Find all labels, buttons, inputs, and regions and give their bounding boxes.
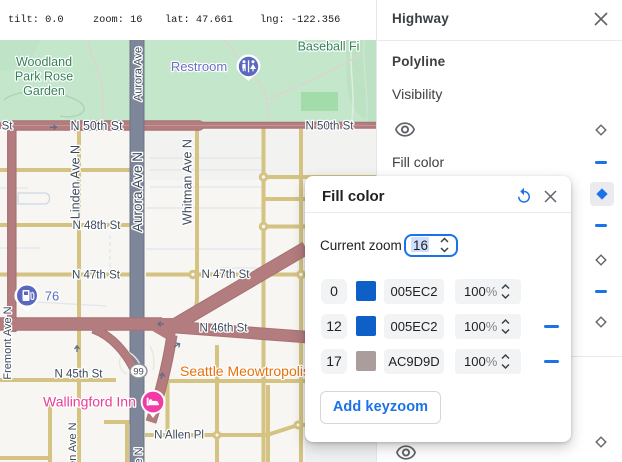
- svg-text:N 50th St: N 50th St: [306, 121, 355, 133]
- svg-text:Whitman Ave N: Whitman Ave N: [181, 139, 195, 225]
- svg-text:N 48th St: N 48th St: [73, 220, 122, 232]
- svg-text:Aurora Ave N: Aurora Ave N: [133, 447, 145, 462]
- svg-text:N 46th St: N 46th St: [200, 323, 249, 335]
- svg-text:Fremont Ave N: Fremont Ave N: [2, 306, 14, 379]
- svg-text:N 47th St: N 47th St: [202, 269, 251, 281]
- svg-text:Wallingford Inn: Wallingford Inn: [43, 394, 136, 410]
- svg-text:Aurora Ave N: Aurora Ave N: [130, 152, 145, 232]
- svg-text:Woodland: Woodland: [16, 55, 72, 69]
- svg-text:Aurora Ave: Aurora Ave: [133, 47, 145, 101]
- svg-text:Linden Ave N: Linden Ave N: [67, 422, 79, 462]
- svg-text:N 47th St: N 47th St: [72, 270, 121, 282]
- svg-text:St: St: [2, 121, 14, 133]
- svg-text:76: 76: [45, 289, 59, 304]
- svg-text:Garden: Garden: [23, 84, 65, 98]
- svg-text:Linden Ave N: Linden Ave N: [69, 145, 83, 219]
- svg-text:N 50th St: N 50th St: [70, 119, 123, 133]
- svg-text:99: 99: [133, 366, 144, 377]
- svg-text:Seattle Meowtropolis: Seattle Meowtropolis: [180, 363, 310, 379]
- svg-text:Park Rose: Park Rose: [15, 70, 73, 84]
- svg-text:N Allen Pl: N Allen Pl: [154, 430, 204, 442]
- svg-text:Baseball Fi: Baseball Fi: [298, 40, 360, 54]
- svg-text:N 45th St: N 45th St: [55, 369, 104, 381]
- svg-text:Restroom: Restroom: [171, 59, 227, 74]
